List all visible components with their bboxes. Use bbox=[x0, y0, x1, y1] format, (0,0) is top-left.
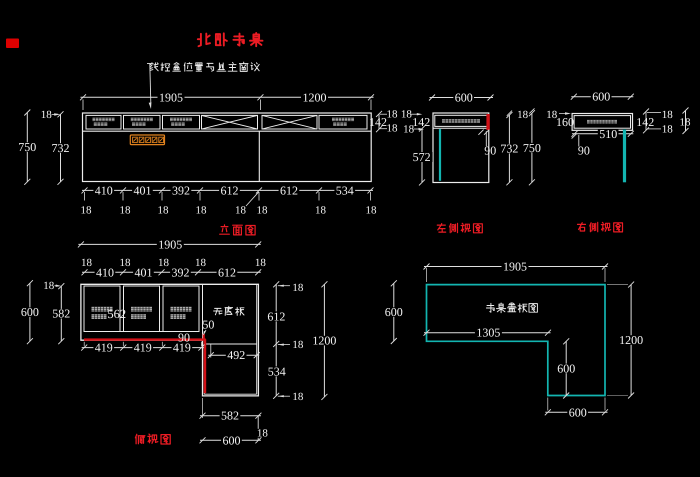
svg-text:612: 612 bbox=[221, 183, 239, 197]
svg-text:732: 732 bbox=[500, 142, 518, 156]
svg-text:18: 18 bbox=[235, 205, 247, 217]
svg-text:401: 401 bbox=[134, 183, 152, 197]
svg-text:1200: 1200 bbox=[619, 333, 643, 347]
svg-text:612: 612 bbox=[267, 309, 285, 323]
svg-text:1200: 1200 bbox=[312, 334, 336, 348]
svg-text:582: 582 bbox=[52, 307, 70, 321]
svg-text:419: 419 bbox=[95, 341, 113, 355]
svg-text:18: 18 bbox=[41, 109, 53, 121]
svg-text:18: 18 bbox=[401, 108, 413, 120]
svg-text:18: 18 bbox=[158, 257, 170, 269]
svg-text:392: 392 bbox=[172, 265, 190, 279]
svg-text:18: 18 bbox=[257, 427, 269, 439]
svg-text:1905: 1905 bbox=[159, 90, 183, 104]
svg-text:18: 18 bbox=[120, 205, 132, 217]
svg-text:18: 18 bbox=[195, 257, 207, 269]
svg-text:18: 18 bbox=[196, 205, 208, 217]
svg-text:534: 534 bbox=[268, 364, 286, 378]
svg-text:1905: 1905 bbox=[158, 237, 182, 251]
svg-text:1905: 1905 bbox=[503, 260, 527, 274]
svg-text:572: 572 bbox=[413, 150, 431, 164]
svg-text:612: 612 bbox=[280, 183, 298, 197]
svg-text:18: 18 bbox=[292, 391, 304, 403]
svg-text:90: 90 bbox=[578, 143, 590, 157]
svg-text:401: 401 bbox=[135, 265, 153, 279]
svg-text:600: 600 bbox=[385, 305, 403, 319]
svg-text:410: 410 bbox=[95, 183, 113, 197]
svg-text:18: 18 bbox=[292, 282, 304, 294]
svg-text:750: 750 bbox=[18, 140, 36, 154]
svg-text:510: 510 bbox=[599, 127, 617, 141]
svg-text:18: 18 bbox=[680, 116, 692, 128]
svg-text:419: 419 bbox=[134, 341, 152, 355]
svg-text:18: 18 bbox=[517, 109, 529, 121]
svg-text:18: 18 bbox=[158, 205, 170, 217]
svg-text:18: 18 bbox=[43, 280, 55, 292]
svg-text:18: 18 bbox=[120, 257, 132, 269]
svg-text:18: 18 bbox=[662, 109, 674, 121]
svg-text:600: 600 bbox=[223, 433, 241, 447]
svg-text:750: 750 bbox=[523, 141, 541, 155]
svg-text:600: 600 bbox=[21, 305, 39, 319]
svg-text:18: 18 bbox=[257, 205, 269, 217]
svg-text:392: 392 bbox=[172, 183, 190, 197]
svg-text:18: 18 bbox=[255, 257, 267, 269]
svg-text:732: 732 bbox=[52, 141, 70, 155]
svg-text:600: 600 bbox=[557, 361, 575, 375]
svg-text:18: 18 bbox=[366, 205, 378, 217]
svg-text:18: 18 bbox=[403, 123, 415, 135]
svg-text:562: 562 bbox=[107, 307, 126, 321]
svg-text:18: 18 bbox=[81, 257, 93, 269]
svg-text:410: 410 bbox=[96, 265, 114, 279]
svg-text:142: 142 bbox=[636, 115, 654, 129]
svg-text:18: 18 bbox=[292, 339, 304, 351]
svg-text:1200: 1200 bbox=[303, 90, 327, 104]
svg-text:18: 18 bbox=[315, 205, 327, 217]
svg-text:612: 612 bbox=[218, 265, 236, 279]
svg-text:90: 90 bbox=[484, 143, 496, 157]
svg-text:419: 419 bbox=[173, 341, 191, 355]
svg-text:600: 600 bbox=[455, 91, 473, 105]
svg-text:600: 600 bbox=[592, 90, 610, 104]
svg-text:18: 18 bbox=[81, 205, 93, 217]
svg-text:142: 142 bbox=[412, 115, 430, 129]
svg-text:142: 142 bbox=[369, 115, 387, 129]
svg-text:160: 160 bbox=[556, 115, 574, 129]
svg-text:1305: 1305 bbox=[476, 326, 500, 340]
svg-text:18: 18 bbox=[387, 108, 399, 120]
svg-text:582: 582 bbox=[221, 409, 239, 423]
svg-text:18: 18 bbox=[662, 123, 674, 135]
svg-text:600: 600 bbox=[569, 405, 587, 419]
svg-text:50: 50 bbox=[202, 318, 214, 332]
svg-text:18: 18 bbox=[387, 123, 399, 135]
svg-text:534: 534 bbox=[336, 183, 354, 197]
svg-text:492: 492 bbox=[227, 348, 245, 362]
